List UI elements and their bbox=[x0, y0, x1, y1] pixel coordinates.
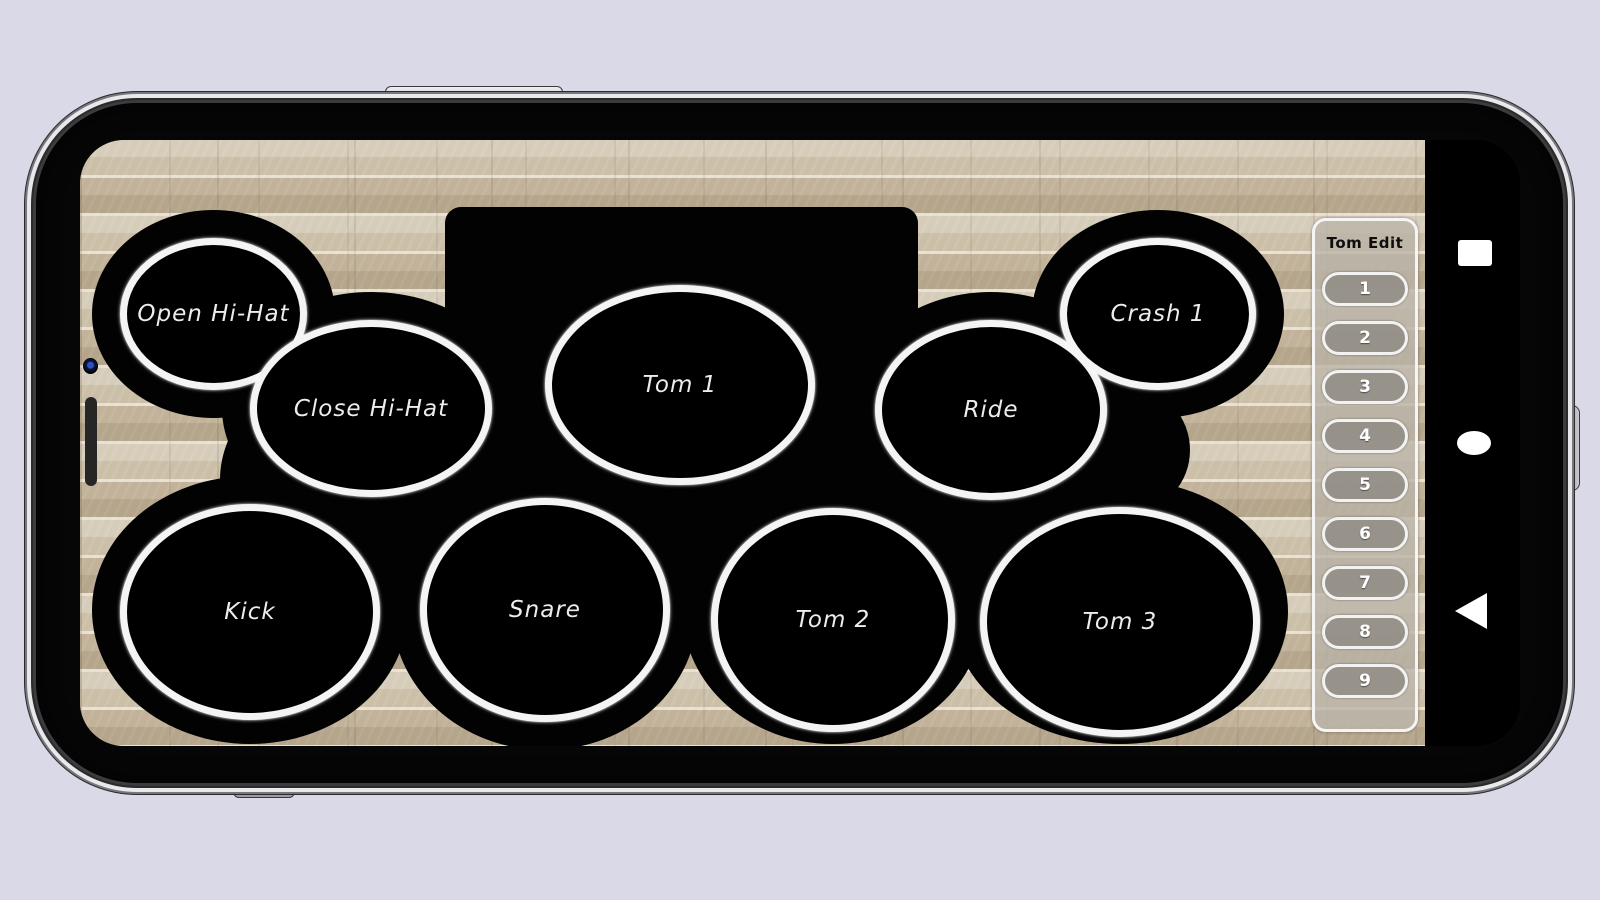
pad-label: Close Hi-Hat bbox=[294, 396, 448, 422]
edit-button-1[interactable]: 1 bbox=[1322, 272, 1408, 306]
android-navbar bbox=[1425, 140, 1520, 746]
tom-edit-panel: Tom Edit 1 2 3 4 5 6 7 8 9 bbox=[1312, 218, 1418, 732]
edit-button-5[interactable]: 5 bbox=[1322, 468, 1408, 502]
pad-snare[interactable]: Snare bbox=[420, 498, 670, 722]
pad-tom-2[interactable]: Tom 2 bbox=[711, 508, 955, 732]
page-background: Open Hi-Hat Close Hi-Hat Tom 1 Ride Cras… bbox=[0, 0, 1600, 900]
back-icon[interactable] bbox=[1455, 593, 1487, 629]
pad-label: Ride bbox=[963, 397, 1018, 423]
pad-label: Kick bbox=[224, 599, 275, 625]
pad-crash-1[interactable]: Crash 1 bbox=[1060, 238, 1256, 390]
speaker-icon bbox=[85, 397, 97, 486]
pad-label: Crash 1 bbox=[1110, 301, 1205, 327]
edit-button-8[interactable]: 8 bbox=[1322, 615, 1408, 649]
edit-button-9[interactable]: 9 bbox=[1322, 664, 1408, 698]
phone-frame: Open Hi-Hat Close Hi-Hat Tom 1 Ride Cras… bbox=[33, 100, 1566, 786]
edit-button-4[interactable]: 4 bbox=[1322, 419, 1408, 453]
tom-edit-title: Tom Edit bbox=[1327, 234, 1404, 252]
stone-wall-background: Open Hi-Hat Close Hi-Hat Tom 1 Ride Cras… bbox=[80, 140, 1425, 746]
pad-label: Tom 3 bbox=[1083, 609, 1158, 635]
edit-button-3[interactable]: 3 bbox=[1322, 370, 1408, 404]
pad-kick[interactable]: Kick bbox=[120, 504, 380, 720]
edit-button-7[interactable]: 7 bbox=[1322, 566, 1408, 600]
pad-label: Snare bbox=[509, 597, 581, 623]
home-icon[interactable] bbox=[1457, 431, 1491, 455]
app-screen: Open Hi-Hat Close Hi-Hat Tom 1 Ride Cras… bbox=[80, 140, 1520, 746]
pad-label: Tom 2 bbox=[796, 607, 871, 633]
edit-button-2[interactable]: 2 bbox=[1322, 321, 1408, 355]
pad-tom-1[interactable]: Tom 1 bbox=[545, 285, 815, 485]
camera-icon bbox=[83, 358, 98, 374]
pad-label: Tom 1 bbox=[643, 372, 718, 398]
recents-icon[interactable] bbox=[1458, 240, 1492, 266]
pad-tom-3[interactable]: Tom 3 bbox=[980, 507, 1260, 737]
pad-label: Open Hi-Hat bbox=[137, 301, 289, 327]
edit-button-6[interactable]: 6 bbox=[1322, 517, 1408, 551]
pad-close-hihat[interactable]: Close Hi-Hat bbox=[250, 320, 492, 497]
